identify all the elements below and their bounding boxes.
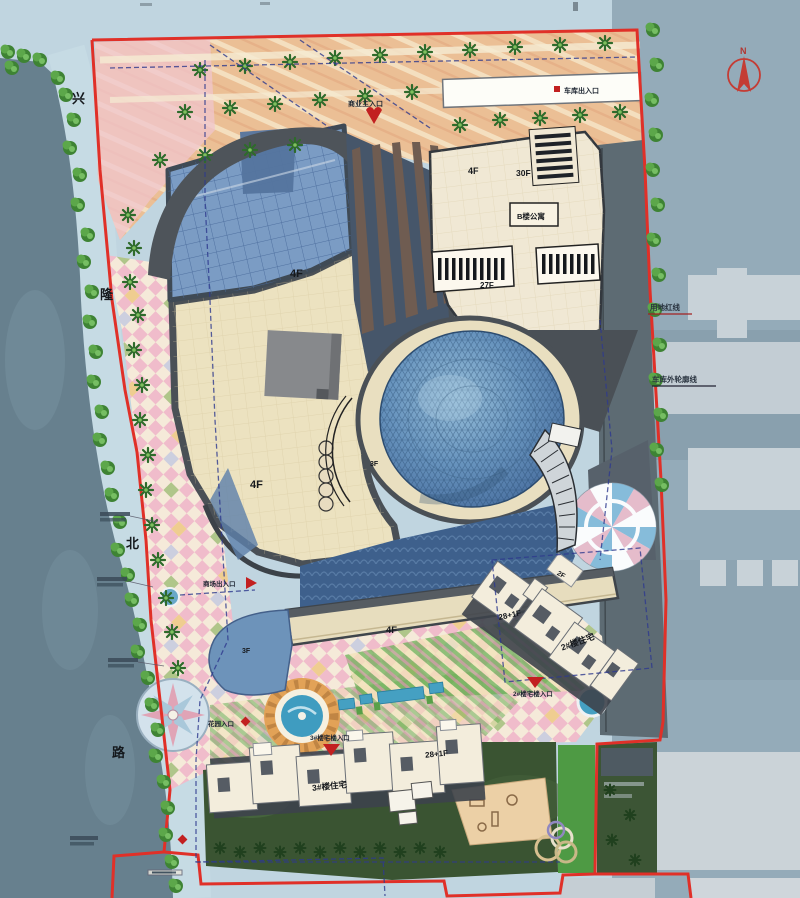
tower-floors: 30F: [516, 168, 531, 178]
ne-building: [430, 126, 604, 344]
retail-strip-floors: 4F: [386, 625, 397, 636]
road-name-char: 路: [112, 745, 126, 760]
louver-roof: [529, 126, 579, 185]
mall-southwest-floors: 4F: [250, 479, 263, 491]
entrance-label-garage: 车库出入口: [564, 86, 599, 95]
mall-annex-floors: 3F: [242, 648, 251, 655]
entrance-marker-mall-side: [246, 577, 257, 589]
site-plan-page: 兴 隆 北 路 4F 4F 3F 4F 30F 27F B楼公寓 4F 3F 2…: [0, 0, 800, 898]
ne-block-floors: 4F: [468, 166, 479, 176]
entrance-label-res3: 3#楼宅楼入口: [310, 733, 350, 742]
entrance-label-commercial: 商业主入口: [348, 99, 383, 108]
existing-slab-building: [443, 73, 642, 108]
entrance-label-mall-side: 商场出入口: [203, 579, 236, 588]
road-name-char: 隆: [100, 287, 114, 302]
north-label: N: [740, 46, 747, 56]
balcony-strip-27f: [432, 246, 514, 292]
entrance-marker-garage: [554, 86, 560, 92]
road-name-char: 北: [126, 536, 139, 551]
balcony-strip-2: [536, 244, 600, 284]
tower2-floors: 27F: [480, 281, 494, 290]
red-line-label: 用地红线: [650, 302, 680, 312]
entrance-label-res2: 2#楼宅楼入口: [513, 689, 553, 698]
entrance-label-garden: 花园入口: [208, 719, 234, 728]
rooftop-block: [264, 330, 341, 400]
se-fan-plaza: [568, 483, 656, 571]
podium-floors: 3F: [370, 461, 379, 468]
road-name-char: 兴: [72, 91, 85, 106]
apartment-name: B楼公寓: [517, 211, 545, 221]
garage-outline-label: 车库外轮廓线: [652, 374, 697, 384]
central-dome: [380, 331, 564, 507]
site-plan-drawing: 兴 隆 北 路 4F 4F 3F 4F 30F 27F B楼公寓 4F 3F 2…: [0, 0, 800, 898]
mall-north-floors: 4F: [290, 268, 303, 280]
